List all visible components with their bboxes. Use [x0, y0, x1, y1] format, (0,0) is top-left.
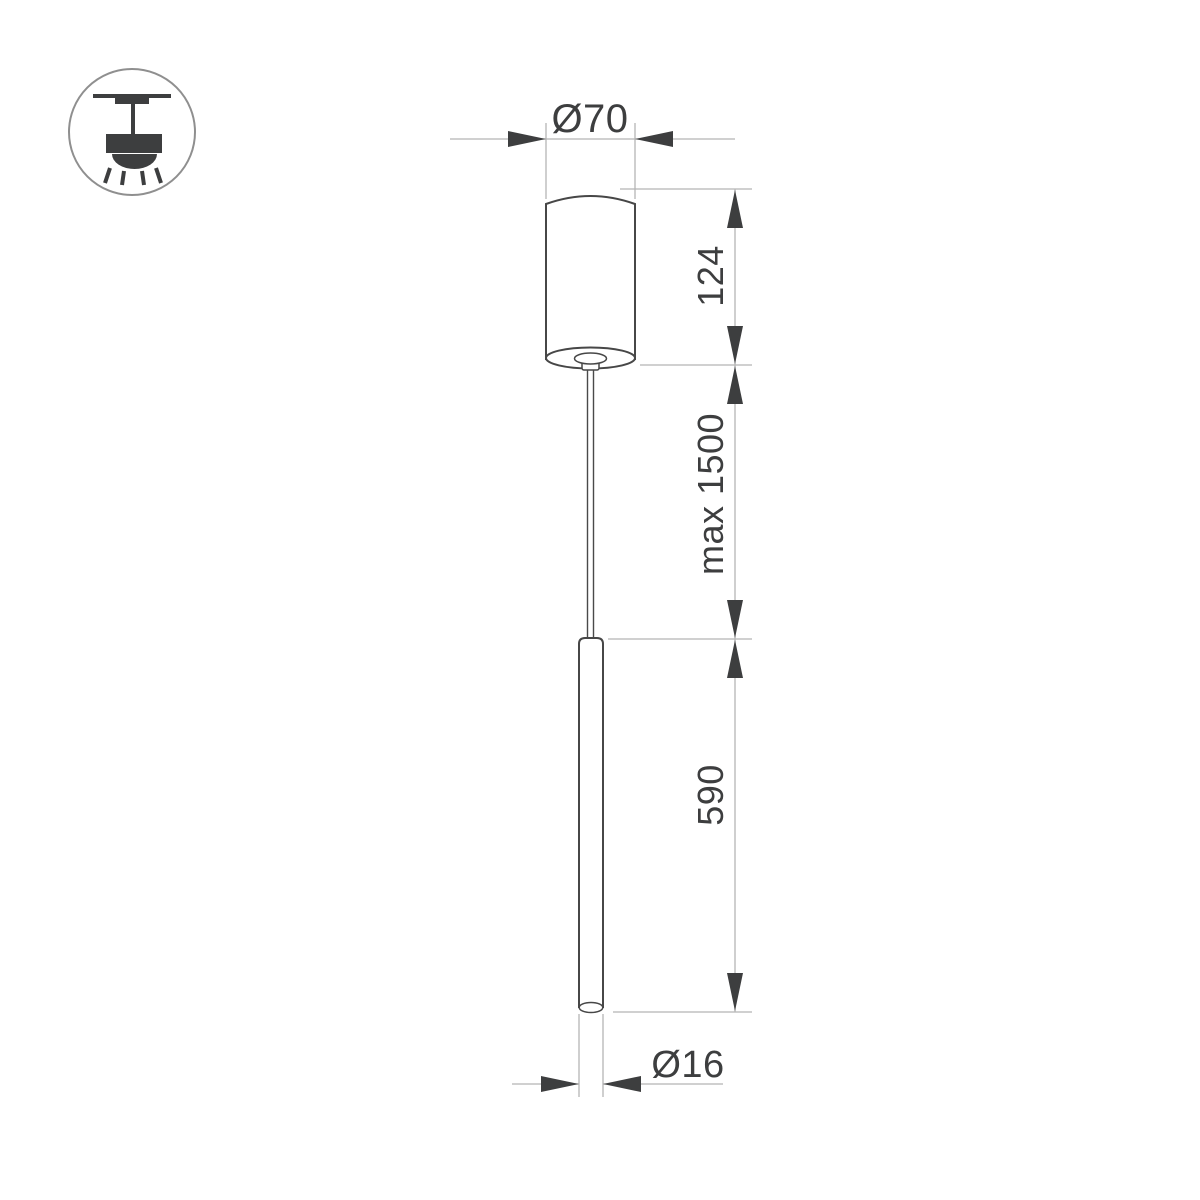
arrow-down-icon [727, 973, 743, 1011]
arrow-down-icon [727, 600, 743, 638]
dim-max-suspension-label: max 1500 [690, 413, 731, 575]
dim-canopy-diameter: Ø70 [450, 97, 735, 199]
arrow-right-icon [508, 131, 546, 147]
arrow-up-icon [727, 366, 743, 404]
icon-lamp-body [106, 134, 162, 153]
dimension-drawing-page: Ø70 124 max 1500 590 Ø16 [0, 0, 1200, 1200]
dim-tube-diameter: Ø16 [512, 1014, 725, 1097]
dim-canopy-diameter-label: Ø70 [551, 97, 628, 141]
dim-tube-diameter-label: Ø16 [651, 1044, 724, 1086]
canopy-body [546, 196, 635, 360]
light-tube [579, 638, 603, 1007]
arrow-down-icon [727, 326, 743, 364]
arrow-left-icon [603, 1076, 641, 1092]
arrow-right-icon [541, 1076, 579, 1092]
dim-tube-length-label: 590 [690, 764, 731, 826]
arrow-up-icon [727, 640, 743, 678]
light-tube-bottom-cap [579, 1003, 603, 1013]
pendant-lamp-drawing: Ø70 124 max 1500 590 Ø16 [0, 0, 1200, 1200]
arrow-up-icon [727, 190, 743, 228]
arrow-left-icon [635, 131, 673, 147]
luminaire-outline [546, 196, 635, 1013]
dim-canopy-height-label: 124 [690, 245, 731, 307]
ceiling-pendant-light-icon [69, 69, 195, 195]
cable-gland [575, 353, 607, 364]
